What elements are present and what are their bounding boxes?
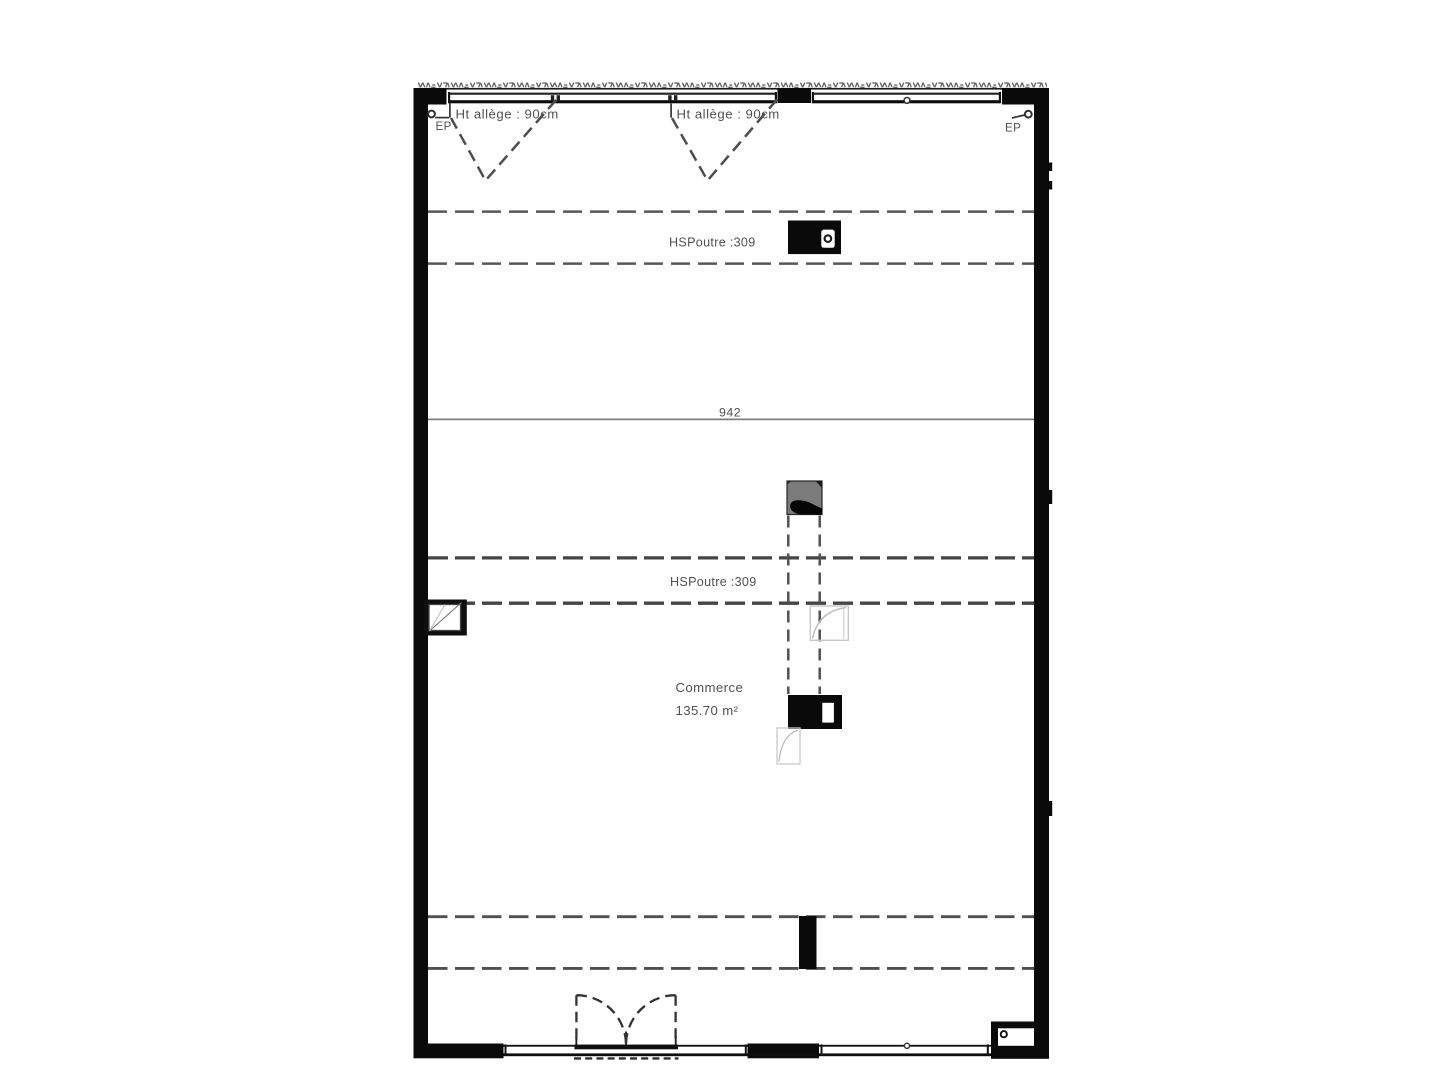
svg-text:HSPoutre :309: HSPoutre :309 bbox=[670, 575, 757, 589]
svg-text:HSPoutre :309: HSPoutre :309 bbox=[669, 235, 756, 249]
svg-text:Commerce: Commerce bbox=[676, 680, 744, 695]
svg-text:942: 942 bbox=[719, 406, 741, 420]
svg-text:EP: EP bbox=[1005, 122, 1021, 135]
svg-text:Ht allège : 90cm: Ht allège : 90cm bbox=[456, 106, 559, 121]
svg-text:135.70 m²: 135.70 m² bbox=[676, 703, 739, 718]
svg-text:Ht allège : 90cm: Ht allège : 90cm bbox=[677, 106, 780, 121]
svg-text:EP: EP bbox=[436, 120, 452, 133]
